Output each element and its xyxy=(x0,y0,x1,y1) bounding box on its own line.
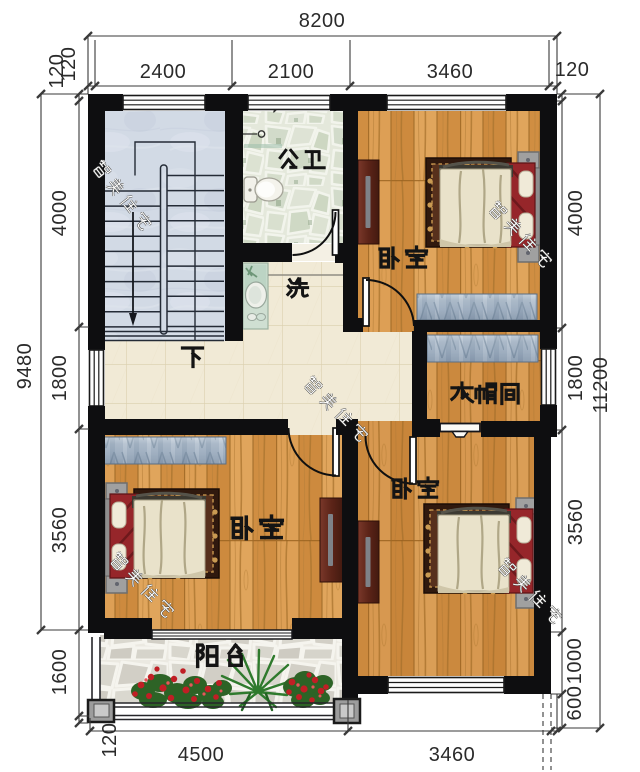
svg-text:2400: 2400 xyxy=(140,61,187,83)
svg-text:3560: 3560 xyxy=(49,507,71,554)
svg-text:600: 600 xyxy=(564,686,586,721)
svg-text:1600: 1600 xyxy=(49,649,71,696)
svg-text:2100: 2100 xyxy=(268,61,315,83)
svg-text:4000: 4000 xyxy=(49,190,71,237)
svg-text:3460: 3460 xyxy=(427,61,474,83)
svg-text:120: 120 xyxy=(99,723,121,758)
svg-text:1800: 1800 xyxy=(565,355,587,402)
svg-text:120: 120 xyxy=(58,47,80,82)
svg-text:4000: 4000 xyxy=(565,190,587,237)
svg-text:8200: 8200 xyxy=(299,10,346,32)
svg-text:1800: 1800 xyxy=(49,355,71,402)
svg-text:4500: 4500 xyxy=(178,744,225,766)
svg-text:1000: 1000 xyxy=(564,638,586,685)
svg-text:3560: 3560 xyxy=(565,499,587,546)
svg-text:3460: 3460 xyxy=(429,744,476,766)
svg-text:120: 120 xyxy=(555,59,590,81)
svg-text:9480: 9480 xyxy=(14,343,36,390)
svg-text:11200: 11200 xyxy=(590,357,612,414)
